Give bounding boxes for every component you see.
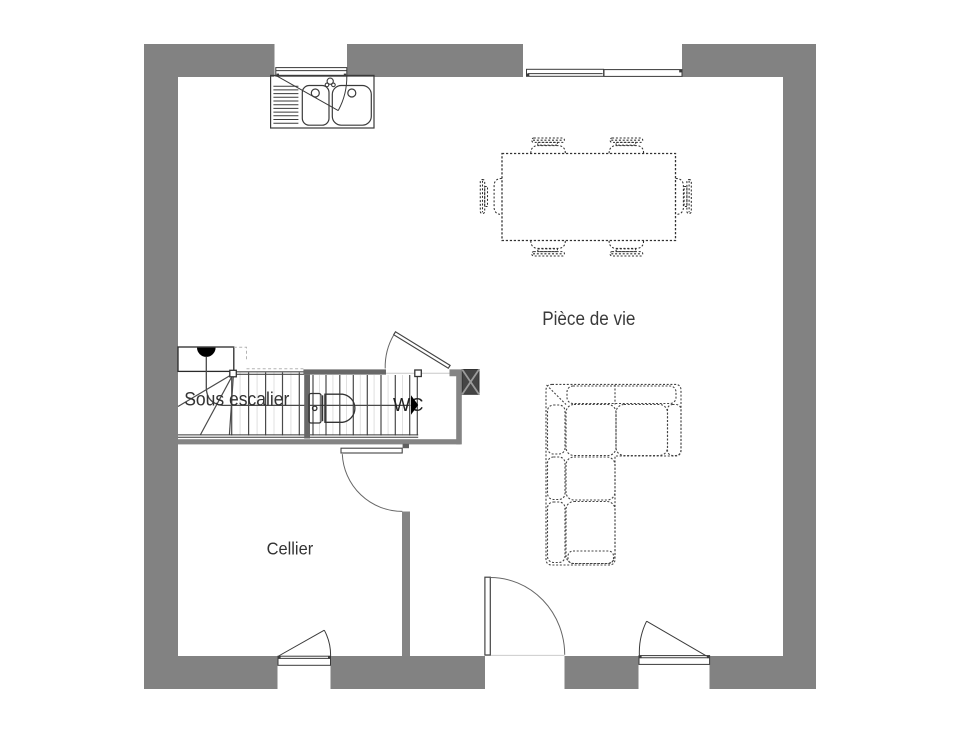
- svg-text:Cellier: Cellier: [267, 538, 314, 558]
- svg-text:WC: WC: [393, 395, 424, 415]
- svg-text:Pièce de vie: Pièce de vie: [542, 308, 635, 330]
- svg-text:Sous escalier: Sous escalier: [184, 388, 290, 410]
